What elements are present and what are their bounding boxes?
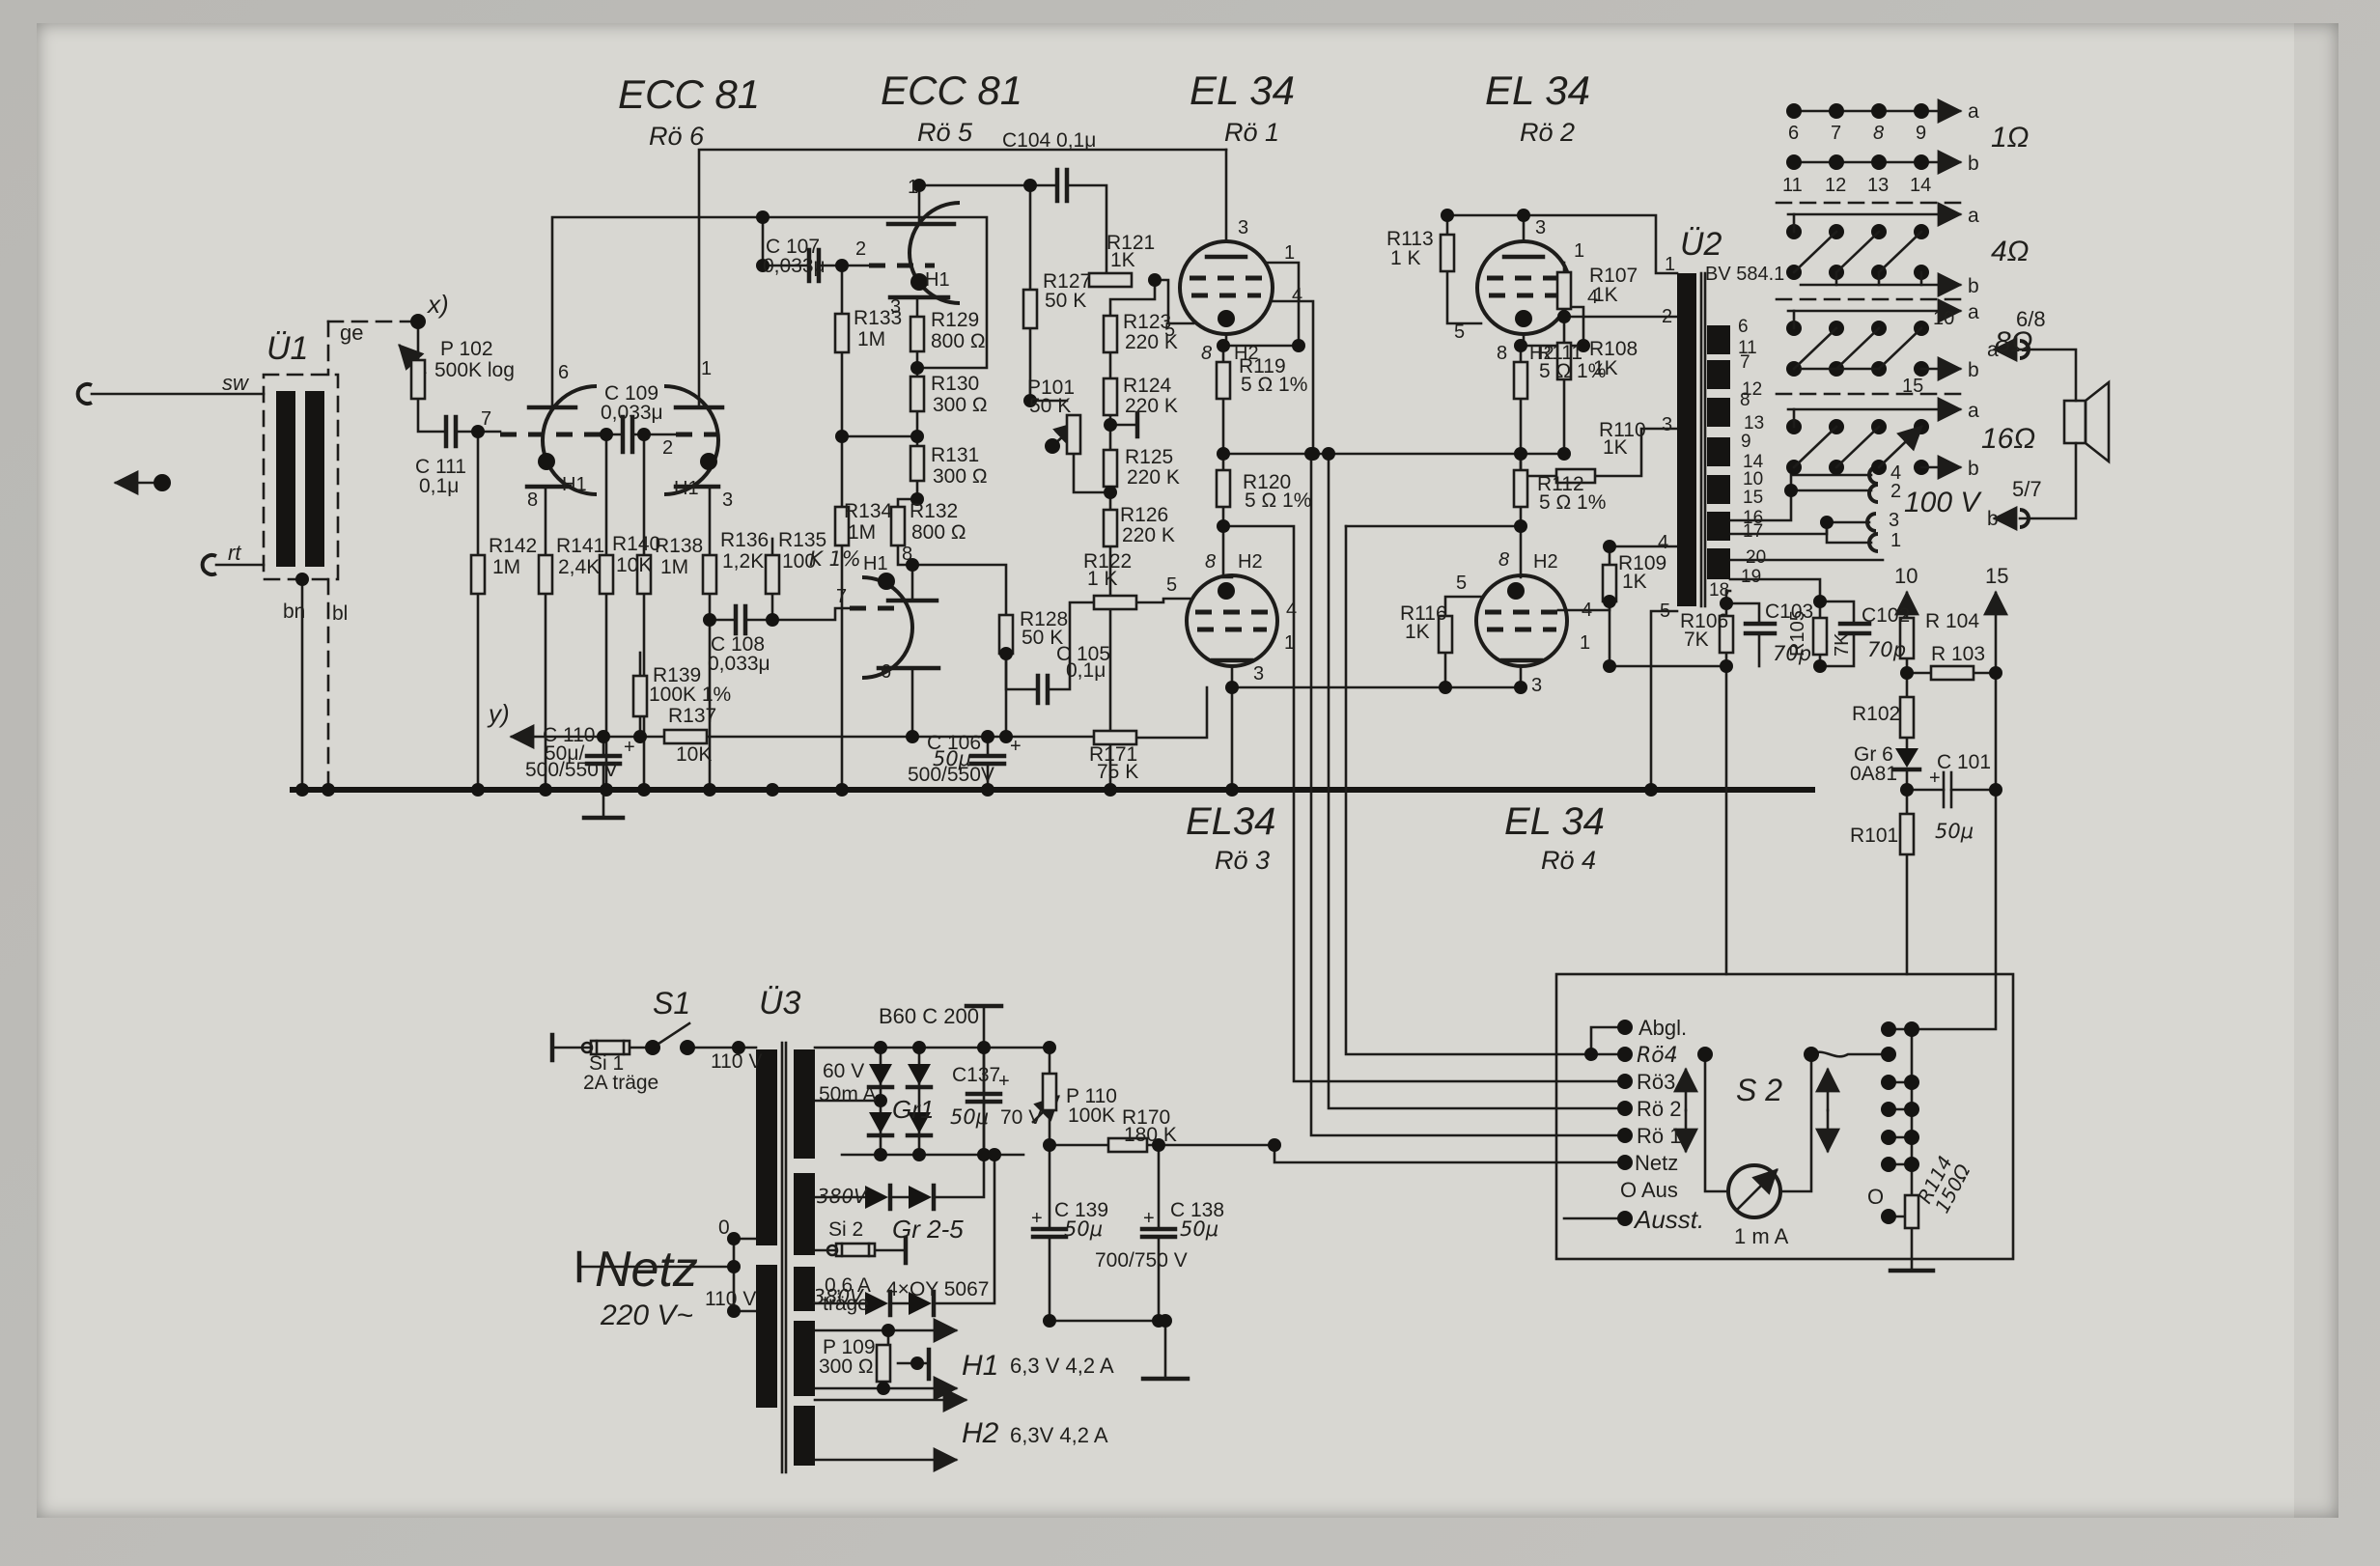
schematic-label: 7 [1740,352,1750,373]
schematic-label: 6,3V 4,2 A [1010,1423,1108,1447]
schematic-label: Rö 4 [1541,846,1596,875]
schematic-label: Ausst. [1633,1205,1704,1234]
schematic-label: 5 Ω 1% [1241,374,1307,396]
schematic-label: + [1929,768,1941,789]
schematic-label: 6/8 [2016,307,2046,331]
schematic-label: 8 [1497,343,1507,364]
schematic-label: 2A träge [583,1072,658,1094]
schematic-label: bn [283,601,305,623]
schematic-canvas: ECC 81Rö 6ECC 81Rö 5EL 34Rö 1EL 34Rö 2EL… [0,0,2380,1566]
impedance-selector-legend [1777,103,1970,475]
schematic-label: 110 V [705,1288,756,1310]
schematic-label: H1 [925,269,950,291]
schematic-label: R141 [556,535,604,557]
schematic-label: 380V [817,1185,868,1208]
tube-ro2 [1477,241,1570,334]
schematic-label: 220 K [1127,466,1180,489]
schematic-label: ECC 81 [881,68,1022,113]
schematic-label: R136 [720,529,769,551]
schematic-label: 14 [1910,175,1931,196]
schematic-label: 50μ [1180,1217,1218,1241]
schematic-label: a [1968,301,1979,323]
schematic-label: S 2 [1736,1073,1782,1107]
schematic-label: H2 [1533,551,1558,573]
schematic-label: Rö 6 [649,122,705,151]
schematic-label: 3 [722,489,733,511]
schematic-label: R129 [931,309,979,331]
schematic-label: 16Ω [1981,423,2035,455]
schematic-label: Abgl. [1638,1016,1687,1040]
schematic-label: 3 [1662,414,1672,435]
schematic-label: 1 [1284,632,1295,654]
schematic-label: Ü3 [759,985,801,1021]
schematic-label: 0,1μ [419,475,459,497]
schematic-label: 4×OY 5067 [886,1278,989,1300]
schematic-label: 1K [1110,249,1135,271]
schematic-label: bl [332,602,348,625]
schematic-label: 1,2K [722,550,764,573]
schematic-label: 8 [527,489,538,511]
schematic-label: C 101 [1937,751,1991,773]
schematic-label: 3 [1889,510,1899,531]
schematic-label: sw [222,371,250,395]
schematic-label: 1K [1405,621,1430,643]
schematic-label: 4 [1658,532,1668,553]
schematic-label: 7K [1684,629,1709,651]
schematic-label: a [1987,339,1999,361]
schematic-label: 0,033μ [763,255,826,277]
schematic-label: R125 [1125,446,1173,468]
schematic-label: Ü1 [266,330,308,367]
schematic-label: 500/550 V [525,759,618,781]
schematic-label: H2 [1529,343,1554,364]
schematic-label: 8 [1201,343,1212,364]
schematic-label: 1 [1574,240,1584,262]
schematic-label: O Aus [1620,1178,1678,1202]
schematic-label: BV 584.1 [1705,264,1784,285]
schematic-label: 8 [1740,390,1750,410]
schematic-label: 1Ω [1991,122,2030,154]
schematic-label: 500/550V [908,764,994,786]
schematic-label: EL 34 [1504,800,1605,843]
schematic-label: 0 [718,1216,730,1239]
schematic-label: 10K [616,554,652,576]
schematic-label: b [1968,458,1979,480]
schematic-label: R133 [854,307,902,329]
tube-ro4 [1476,575,1567,666]
schematic-label: EL34 [1186,800,1275,843]
schematic-label: 19 [1741,567,1761,587]
schematic-label: 1 K [1390,247,1421,269]
schematic-label: 6 [558,362,569,383]
schematic-label: x) [426,290,449,319]
schematic-label: R 103 [1931,643,1985,665]
schematic-label: 1 [1890,530,1901,551]
schematic-label: 4 [1292,285,1302,306]
schematic-label: 4 [1587,287,1598,308]
schematic-label: 5 [1166,574,1177,596]
schematic-label: R105 [1787,610,1808,657]
schematic-label: 6 [881,661,891,683]
wires [92,150,2076,1460]
schematic-label: 13 [1744,413,1764,433]
schematic-label: 700/750 V [1095,1249,1188,1272]
schematic-label: 300 Ω [819,1356,874,1378]
schematic-label: 800 Ω [931,330,986,352]
schematic-label: 0,033μ [708,653,770,675]
schematic-label: 10 [1894,564,1918,588]
schematic-label: ge [340,321,363,345]
schematic-label: a [1968,100,1979,123]
schematic-label: 6 [1738,317,1749,337]
schematic-label: 15 [1985,564,2008,588]
schematic-label: C104 0,1μ [1002,129,1096,152]
schematic-label: 220 V~ [600,1300,693,1331]
schematic-label: b [1987,508,1999,530]
schematic-label: 100K 1% [649,684,731,706]
schematic-label: 70p [1867,638,1906,661]
schematic-label: 2 [1890,481,1901,502]
schematic-label: rt [228,541,241,565]
schematic-label: + [624,737,635,758]
schematic-label: H1 [863,553,888,574]
schematic-label: 10 [1933,308,1954,329]
schematic-label: + [1010,736,1022,757]
tube-ro3 [1187,575,1277,666]
schematic-label: Rö4 [1637,1044,1678,1068]
schematic-label: 60 V [823,1060,864,1082]
schematic-label: 1M [857,328,885,350]
schematic-label: 50μ [950,1105,989,1129]
schematic-label: R142 [489,535,537,557]
schematic-label: R137 [668,705,716,727]
schematic-label: Si 2 [828,1218,863,1241]
schematic-label: 8 [1498,549,1509,571]
schematic-label: Netz [1635,1151,1678,1175]
schematic-label: 5 [1660,601,1670,622]
schematic-label: Rö 1 [1224,118,1279,147]
schematic-label: 50μ [1935,820,1974,843]
schematic-label: 13 [1867,175,1889,196]
schematic-label: Gr 2-5 [892,1215,964,1244]
schematic-label: 100K [1068,1105,1115,1127]
schematic-label: 2 [1662,306,1672,327]
schematic-label: 50 K [1029,395,1071,417]
schematic-label: ECC 81 [618,71,760,117]
schematic-label: 3 [1253,663,1264,685]
transformer-u2 [1677,273,1730,606]
schematic-label: R101 [1850,825,1898,847]
schematic-label: R102 [1852,703,1900,725]
schematic-label: 1 [908,177,918,198]
schematic-label: 5 Ω 1% [1245,489,1311,512]
schematic-label: b [1968,359,1979,381]
schematic-label: 5 [1456,573,1467,594]
schematic-label: + [1031,1208,1043,1229]
schematic-label: 1 [1284,242,1295,264]
schematic-label: 1 m A [1734,1224,1789,1248]
schematic-label: 50 K [1045,290,1086,312]
schematic-label: B60 C 200 [879,1004,979,1028]
schematic-label: R134 [844,500,893,522]
schematic-label: 1K [1603,436,1628,459]
schematic-label: S1 [653,986,690,1021]
scanned-schematic-sheet: ECC 81Rö 6ECC 81Rö 5EL 34Rö 1EL 34Rö 2EL… [0,0,2380,1566]
schematic-label: R126 [1120,504,1168,526]
schematic-label: 7 [836,586,847,607]
schematic-label: 3 [1535,217,1546,238]
s2-switch [1556,974,2013,1259]
schematic-label: 500K log [434,359,515,381]
schematic-label: 75 K [1097,761,1138,783]
schematic-label: P 102 [440,338,493,360]
schematic-label: 11 [1782,175,1803,196]
schematic-label: 220 K [1125,395,1178,417]
schematic-label: 7 [481,408,491,430]
schematic-label: 1M [492,556,520,578]
schematic-label: 2,4K [558,556,600,578]
schematic-label: 6 [1788,123,1799,144]
schematic-label: H2 [1234,343,1259,364]
schematic-label: + [998,1071,1010,1092]
schematic-label: Rö 2 [1637,1097,1681,1121]
schematic-label: y) [487,699,510,728]
schematic-label: Rö 1 [1637,1124,1681,1148]
schematic-label: 300 Ω [933,465,988,488]
schematic-label: 50μ [1064,1217,1103,1241]
schematic-label: 1 [701,358,712,379]
schematic-label: 10K [676,743,712,766]
schematic-label: 4 [1286,600,1297,621]
schematic-label: 0A81 [1850,763,1897,785]
schematic-label: C137 [952,1064,1000,1086]
schematic-label: H1 [562,474,587,495]
schematic-label: 5 [1454,322,1465,343]
schematic-label: 1K [1622,571,1647,593]
schematic-label: H2 [1238,551,1263,573]
schematic-label: 2 [855,238,866,260]
schematic-label: b [1968,153,1979,175]
transformer-u3 [756,1043,815,1472]
schematic-label: 220 K [1122,524,1175,546]
schematic-label: 17 [1743,521,1763,542]
schematic-label: b [1968,275,1979,297]
schematic-label: 20 [1746,547,1766,568]
schematic-label: 0,033μ [601,402,663,424]
schematic-label: 1 [1580,632,1590,654]
schematic-label: 110 V [711,1050,762,1073]
schematic-label: Rö 2 [1520,118,1575,147]
speaker-icon [2064,382,2109,461]
schematic-label: 10 [1743,469,1763,489]
schematic-label: 100 V [1904,487,1982,518]
schematic-label: 3 [1238,217,1248,238]
schematic-label: 2 [662,437,673,459]
schematic-label: 4Ω [1991,236,2030,267]
schematic-label: 15 [1743,488,1763,508]
schematic-label: 6,3 V 4,2 A [1010,1354,1114,1378]
schematic-label: 7 [1831,123,1841,144]
schematic-label: Rö 5 [917,118,973,147]
schematic-label: 8 [1205,551,1216,573]
schematic-label: R140 [612,533,660,555]
schematic-label: 8 [1873,123,1884,144]
schematic-label: Netz [595,1242,698,1298]
schematic-label: 9 [1916,123,1926,144]
schematic-label: 180 K [1124,1124,1177,1146]
schematic-label: 1M [848,521,876,544]
schematic-label: R138 [655,535,703,557]
schematic-label: R 104 [1925,610,1979,632]
schematic-label: a [1968,400,1979,422]
schematic-label: R132 [910,500,958,522]
schematic-label: Rö 3 [1215,846,1270,875]
schematic-label: Rö3 [1637,1070,1675,1094]
schematic-label: 300 Ω [933,394,988,416]
schematic-label: H2 [962,1417,999,1449]
schematic-label: EL 34 [1485,68,1590,113]
schematic-label: 1 K [1087,568,1118,590]
schematic-label: 7K [1832,632,1853,657]
schematic-label: 0,1μ [1066,659,1106,682]
schematic-label: 5 [1164,320,1175,341]
schematic-label: 50m A [819,1083,877,1105]
schematic-label: 18 [1709,580,1729,601]
schematic-label: a [1968,205,1979,227]
schematic-label: 70 V [1000,1106,1042,1129]
tube-ro1 [1180,241,1273,334]
schematic-label: EL 34 [1190,68,1295,113]
schematic-label: H1 [674,478,699,499]
schematic-labels: ECC 81Rö 6ECC 81Rö 5EL 34Rö 1EL 34Rö 2EL… [222,68,2046,1449]
schematic-label: R124 [1123,375,1172,397]
schematic-label: 12 [1825,175,1846,196]
schematic-label: C102 [1862,604,1910,627]
schematic-label: 3 [1531,675,1542,696]
schematic-label: H1 [962,1350,998,1382]
schematic-label: 5/7 [2012,477,2042,501]
schematic-label: 5 Ω 1% [1539,491,1606,514]
transformer-u1 [264,375,338,579]
schematic-label: Gr1 [892,1095,934,1124]
schematic-label: 8 [902,544,912,565]
schematic-label: 15 [1902,376,1923,397]
schematic-label: 9 [1741,432,1751,452]
schematic-label: 4 [1582,600,1592,621]
schematic-label: 800 Ω [911,521,966,544]
schematic-label: 380V [813,1285,864,1308]
schematic-label: K 1% [809,547,861,571]
schematic-label: + [1143,1208,1155,1229]
schematic-label: 1 [1665,254,1675,275]
schematic-label: O [1867,1185,1884,1209]
schematic-label: 1M [660,556,688,578]
schematic-label: R130 [931,373,979,395]
schematic-label: Ü2 [1680,226,1722,263]
schematic-label: R131 [931,444,979,466]
